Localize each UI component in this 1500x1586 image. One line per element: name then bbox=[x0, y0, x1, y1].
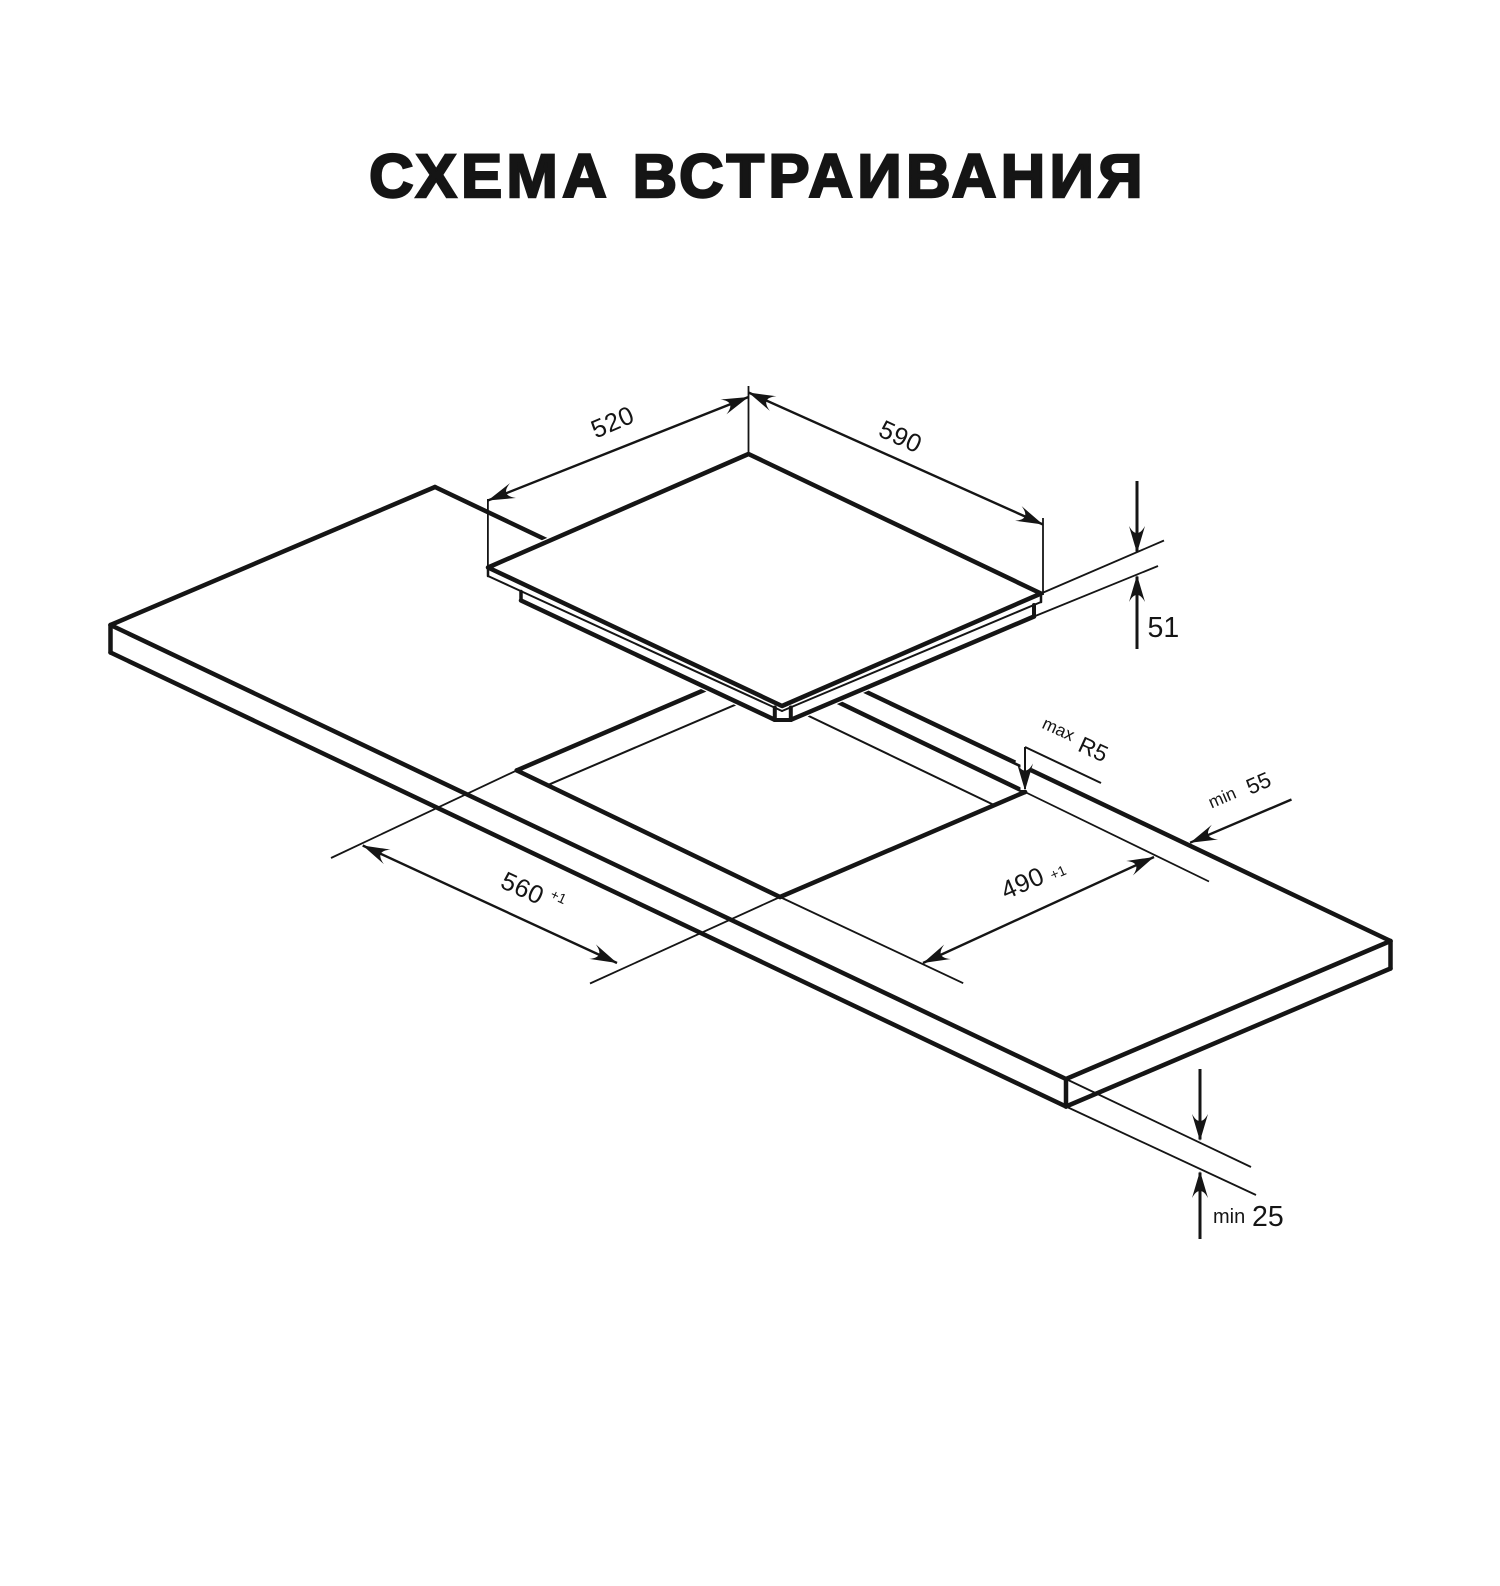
svg-text:51: 51 bbox=[1148, 612, 1180, 644]
svg-text:СХЕМА ВСТРАИВАНИЯ: СХЕМА ВСТРАИВАНИЯ bbox=[369, 142, 1147, 211]
svg-text:min: min bbox=[1213, 1206, 1245, 1228]
svg-text:25: 25 bbox=[1252, 1201, 1284, 1233]
